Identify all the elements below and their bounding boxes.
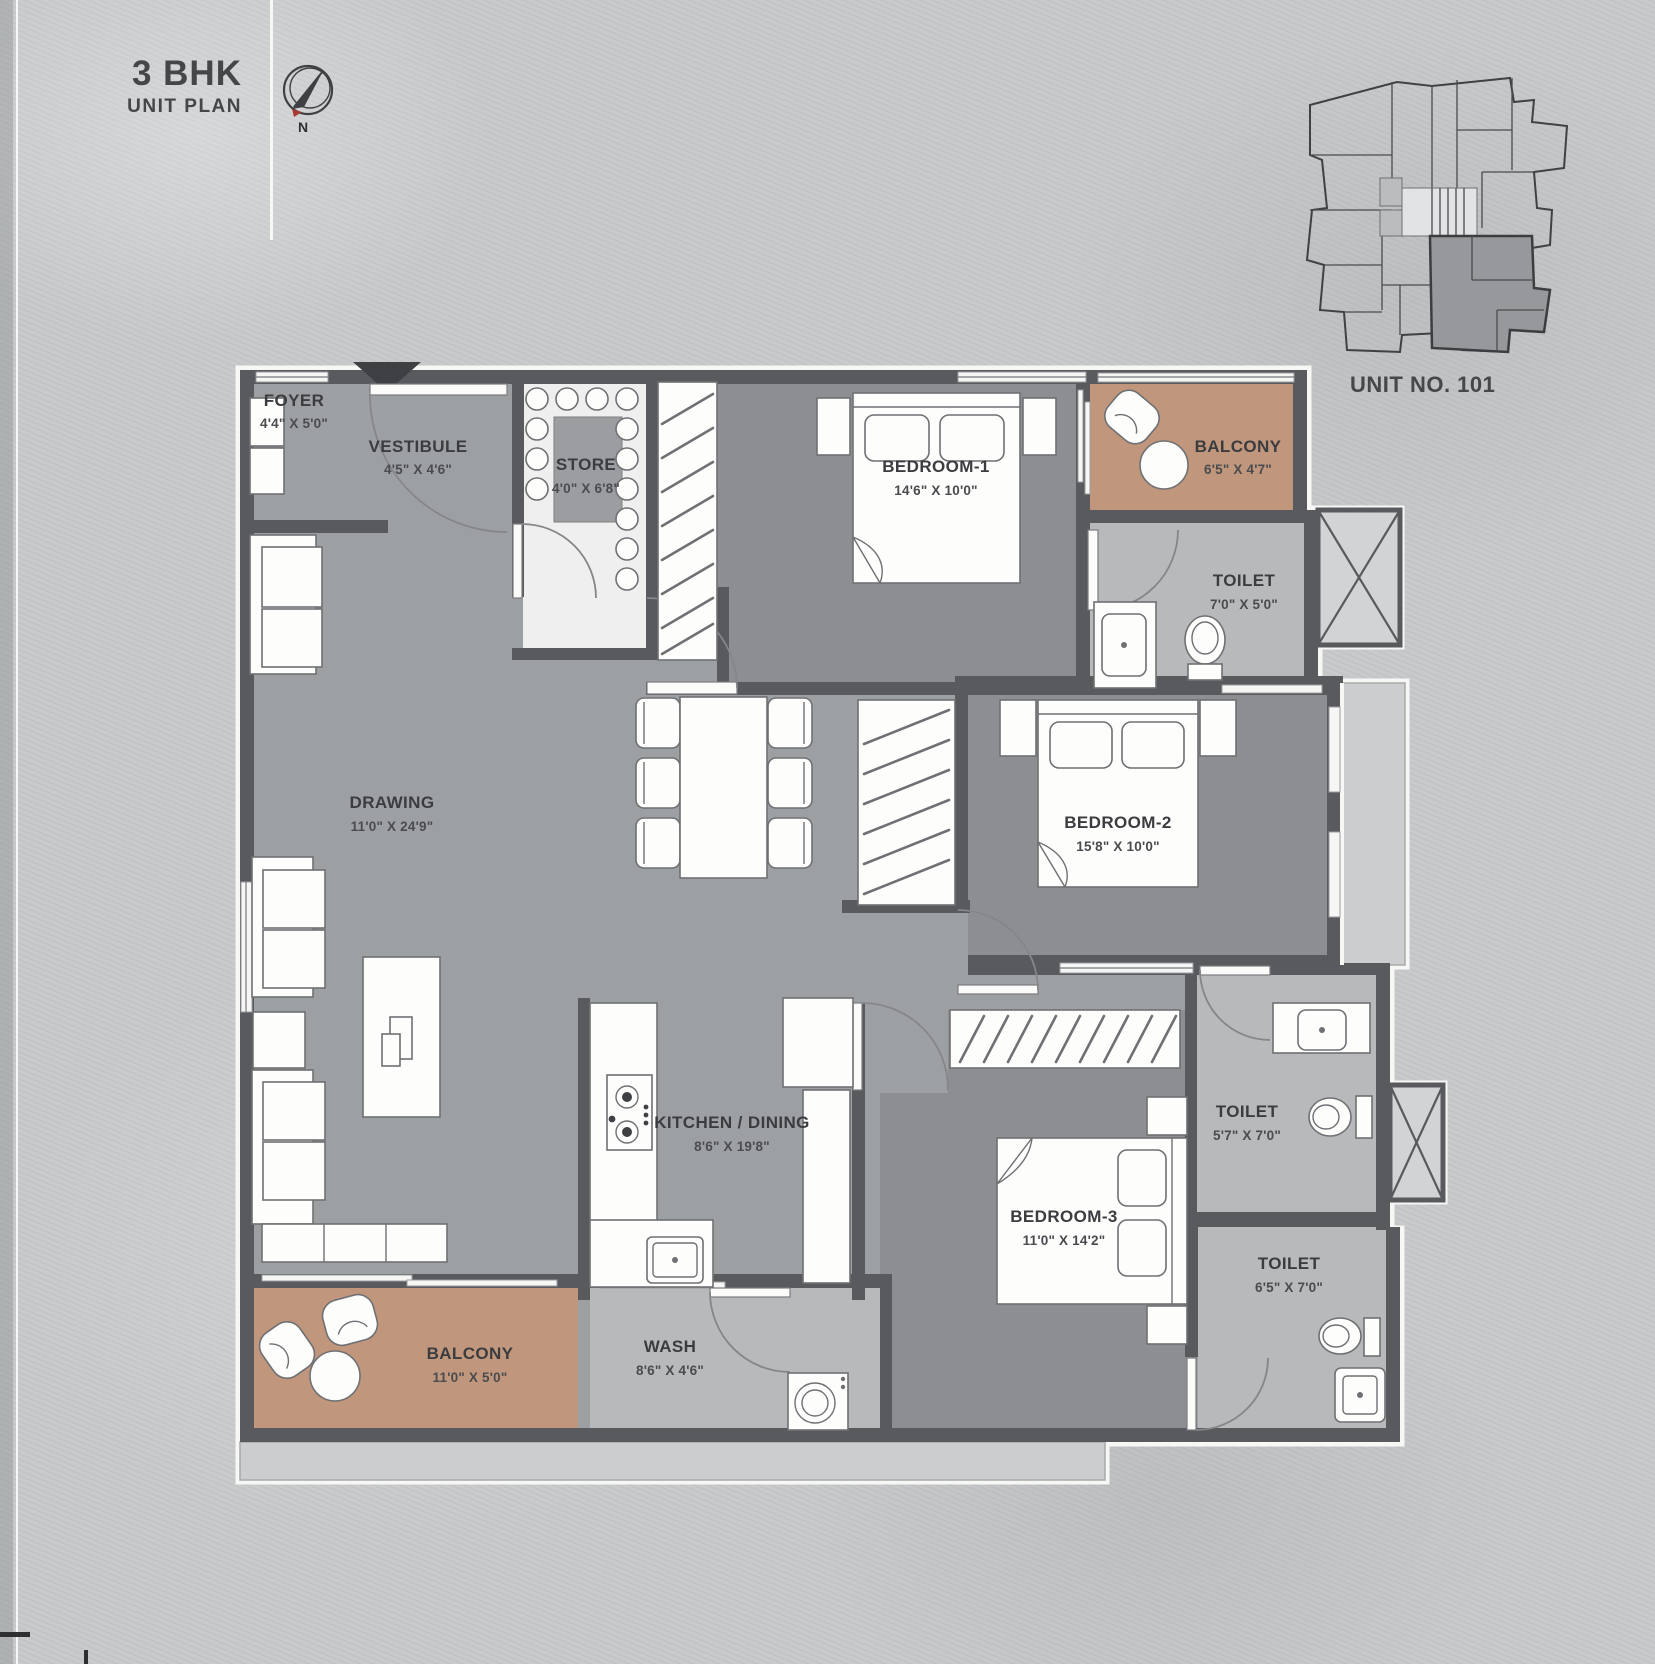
terrace-strip xyxy=(240,1442,1105,1480)
page-edge-shade xyxy=(0,0,13,1664)
toilet1-dims: 7'0" X 5'0" xyxy=(1210,597,1278,612)
vestibule-dims: 4'5" X 4'6" xyxy=(384,462,452,477)
bedroom1-dims: 14'6" X 10'0" xyxy=(894,483,977,498)
balcony2-slider xyxy=(262,1275,412,1281)
north-compass-icon: N xyxy=(276,60,340,145)
balcony1-slider xyxy=(1078,390,1083,482)
toilet2-dims: 5'7" X 7'0" xyxy=(1213,1128,1281,1143)
bedroom3-dims: 11'0" X 14'2" xyxy=(1023,1233,1106,1248)
floor-plan-page: 3 BHK UNIT PLAN N UNI xyxy=(0,0,1655,1664)
dining-set xyxy=(636,697,812,878)
dining-table xyxy=(680,697,767,878)
foyer-dims: 4'4" X 5'0" xyxy=(260,416,328,431)
unit-plan-drawing: FOYER 4'4" X 5'0" VESTIBULE 4'5" X 4'6" … xyxy=(232,362,1452,1492)
foyer-cabinet xyxy=(250,398,284,494)
kitchen-label: KITCHEN / DINING xyxy=(654,1113,810,1132)
kitchen-cabinet xyxy=(803,1090,850,1283)
bedroom3-door xyxy=(853,1003,862,1090)
bedroom1-door xyxy=(647,682,737,694)
bedroom2-door xyxy=(958,985,1038,994)
drawing-label: DRAWING xyxy=(350,793,435,812)
store-door xyxy=(513,524,522,598)
balcony2-label: BALCONY xyxy=(427,1344,514,1363)
balcony1-dims: 6'5" X 4'7" xyxy=(1204,462,1272,477)
bedroom2-dims: 15'8" X 10'0" xyxy=(1076,839,1159,854)
balcony1-label: BALCONY xyxy=(1195,437,1282,456)
wash-dims: 8'6" X 4'6" xyxy=(636,1363,704,1378)
key-plan-highlighted-unit xyxy=(1430,236,1550,352)
tv-console xyxy=(262,1224,447,1262)
title-divider xyxy=(270,0,273,240)
balcony2-table xyxy=(310,1351,360,1401)
coffee-table xyxy=(363,957,440,1117)
wardrobe-bedroom3 xyxy=(950,1010,1180,1068)
ledge-strip xyxy=(1343,683,1405,965)
drawing-dims: 11'0" X 24'9" xyxy=(351,819,434,834)
key-plan-building-outline xyxy=(1307,78,1567,352)
foyer-label: FOYER xyxy=(264,391,325,410)
main-door xyxy=(370,384,507,395)
ledge-separator xyxy=(1340,683,1344,965)
crop-mark-vertical xyxy=(84,1650,88,1664)
plan-title-block: 3 BHK UNIT PLAN xyxy=(118,56,242,118)
toilet1-label: TOILET xyxy=(1213,571,1276,590)
toilet2-door xyxy=(1200,966,1270,975)
washing-machine xyxy=(788,1373,848,1430)
kitchen-dims: 8'6" X 19'8" xyxy=(694,1139,770,1154)
duct-shaft-2 xyxy=(1390,1085,1443,1200)
sofa-1 xyxy=(252,857,325,997)
wardrobe-bedroom2 xyxy=(858,700,955,905)
duct-shaft-1 xyxy=(1318,510,1400,645)
store-label: STORE xyxy=(556,455,616,474)
window-seat xyxy=(250,535,322,674)
wash-label: WASH xyxy=(644,1337,697,1356)
plan-subtitle: UNIT PLAN xyxy=(118,96,242,118)
wash-door xyxy=(710,1288,790,1297)
balcony1-table xyxy=(1140,441,1188,489)
wardrobe-bedroom1 xyxy=(658,382,717,660)
balcony2-dims: 11'0" X 5'0" xyxy=(433,1370,508,1385)
toilet3-dims: 6'5" X 7'0" xyxy=(1255,1280,1323,1295)
plan-title: 3 BHK xyxy=(118,56,242,91)
toilet1-door xyxy=(1088,530,1098,610)
bedroom1-label: BEDROOM-1 xyxy=(882,457,990,476)
page-frame-line xyxy=(16,0,18,1664)
key-plan xyxy=(1282,60,1612,375)
store-dims: 4'0" X 6'8" xyxy=(552,481,620,496)
compass-n-label: N xyxy=(298,119,308,135)
refrigerator xyxy=(783,998,853,1087)
bedroom2-label: BEDROOM-2 xyxy=(1064,813,1172,832)
crop-mark-horizontal xyxy=(0,1632,30,1637)
bedroom3-label: BEDROOM-3 xyxy=(1010,1207,1118,1226)
side-table xyxy=(253,1012,305,1068)
toilet2-label: TOILET xyxy=(1216,1102,1279,1121)
toilet3-door xyxy=(1187,1358,1196,1430)
toilet3-label: TOILET xyxy=(1258,1254,1321,1273)
vestibule-label: VESTIBULE xyxy=(368,437,467,456)
